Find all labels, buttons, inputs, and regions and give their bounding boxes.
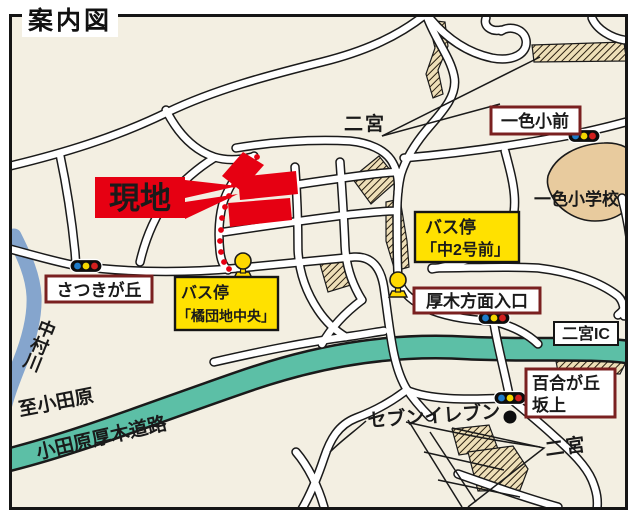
- site-label: 現地: [109, 181, 171, 216]
- map-title: 案内図: [22, 1, 118, 37]
- bus-stop-prefix: バス停: [425, 217, 476, 237]
- label-text: 厚木方面入口: [426, 291, 528, 311]
- label-box-satsukigaoka: さつきが丘: [46, 276, 152, 302]
- guide-map: 現地 バス停 「橘団地中央」: [12, 17, 625, 507]
- label-text: 二宮IC: [562, 324, 610, 343]
- label-box-ninomiya-ic: 二宮IC: [554, 322, 618, 345]
- label-text: 一色小前: [501, 111, 569, 131]
- bus-stop-pole-icon: [389, 272, 407, 297]
- label-text: 坂上: [532, 396, 566, 415]
- bus-stop-prefix: バス停: [181, 283, 229, 302]
- bus-stop-label-naka2: バス停 「中2号前」: [415, 212, 519, 262]
- bus-stop-name: 「橘団地中央」: [177, 308, 275, 324]
- traffic-light-icon: [70, 260, 102, 273]
- label-text: 百合が丘: [532, 373, 600, 393]
- bus-stop-name: 「中2号前」: [421, 240, 510, 259]
- label-text: さつきが丘: [57, 280, 142, 300]
- label-box-atsugi-entrance: 厚木方面入口: [414, 288, 540, 313]
- label-isshiki-elementary: 一色小学校: [534, 189, 620, 209]
- bus-stop-pole-icon: [234, 253, 252, 278]
- label-ninomiya-top: 二宮: [344, 112, 386, 135]
- label-box-yurigaoka-sakaue: 百合が丘 坂上: [526, 369, 615, 417]
- label-box-isshiki-sho-mae: 一色小前: [491, 107, 580, 134]
- store-location-dot: [504, 411, 517, 424]
- bus-stop-label-tachibana: バス停 「橘団地中央」: [175, 277, 278, 330]
